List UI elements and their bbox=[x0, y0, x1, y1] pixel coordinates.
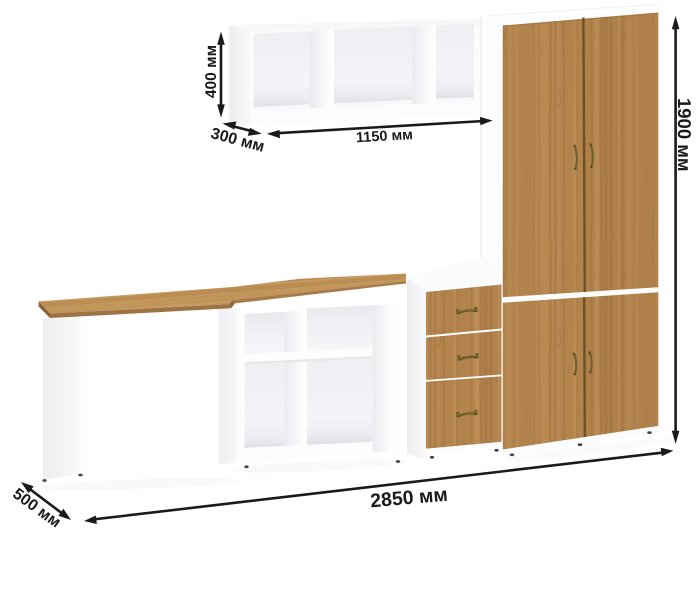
svg-text:1150 мм: 1150 мм bbox=[356, 127, 414, 146]
svg-text:400 мм: 400 мм bbox=[203, 45, 220, 98]
svg-text:1900 мм: 1900 мм bbox=[674, 98, 695, 172]
